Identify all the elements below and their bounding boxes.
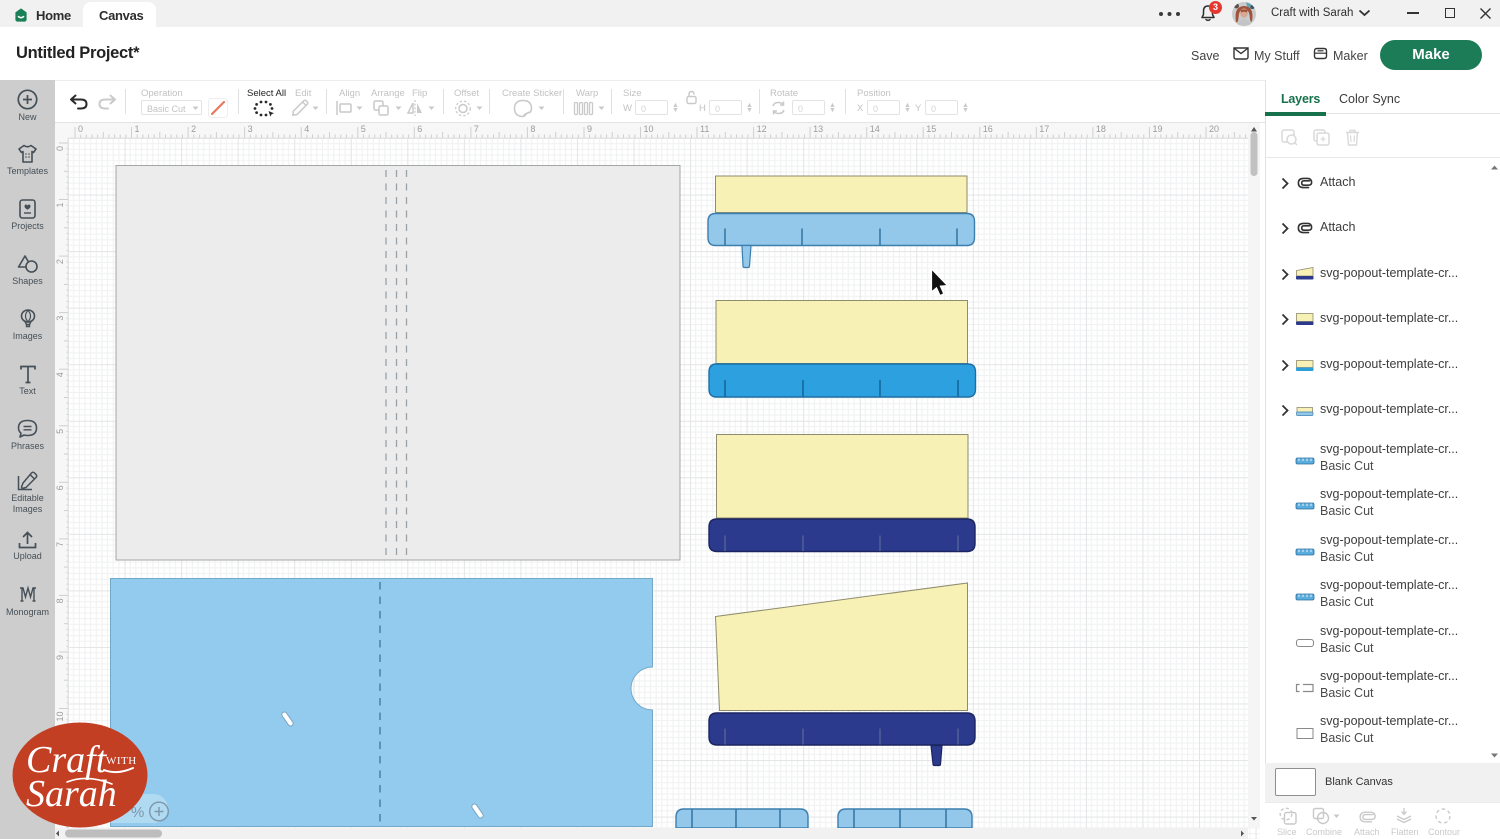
svg-text:15: 15: [926, 124, 936, 134]
svg-text:10: 10: [55, 712, 65, 722]
svg-text:16: 16: [983, 124, 993, 134]
svg-text:0: 0: [78, 124, 83, 134]
svg-text:3: 3: [248, 124, 253, 134]
svg-text:12: 12: [757, 124, 767, 134]
svg-text:0: 0: [55, 146, 65, 151]
svg-text:1: 1: [135, 124, 140, 134]
svg-text:6: 6: [55, 485, 65, 490]
svg-text:5: 5: [55, 429, 65, 434]
svg-text:5: 5: [361, 124, 366, 134]
svg-text:Sarah: Sarah: [26, 773, 117, 815]
svg-text:WITH: WITH: [106, 755, 137, 767]
svg-text:9: 9: [55, 655, 65, 660]
svg-text:3: 3: [55, 316, 65, 321]
svg-text:20: 20: [1209, 124, 1219, 134]
svg-text:9: 9: [587, 124, 592, 134]
svg-text:7: 7: [474, 124, 479, 134]
svg-text:13: 13: [813, 124, 823, 134]
svg-text:11: 11: [700, 124, 709, 134]
svg-text:8: 8: [55, 598, 65, 603]
svg-text:8: 8: [530, 124, 535, 134]
svg-text:4: 4: [304, 124, 309, 134]
svg-text:4: 4: [55, 372, 65, 377]
svg-text:2: 2: [191, 124, 196, 134]
svg-text:10: 10: [644, 124, 654, 134]
svg-text:19: 19: [1153, 124, 1163, 134]
svg-text:7: 7: [55, 542, 65, 547]
svg-text:1: 1: [55, 203, 65, 208]
svg-text:2: 2: [55, 259, 65, 264]
svg-text:18: 18: [1096, 124, 1106, 134]
svg-text:17: 17: [1039, 124, 1049, 134]
svg-text:6: 6: [417, 124, 422, 134]
svg-text:14: 14: [870, 124, 880, 134]
